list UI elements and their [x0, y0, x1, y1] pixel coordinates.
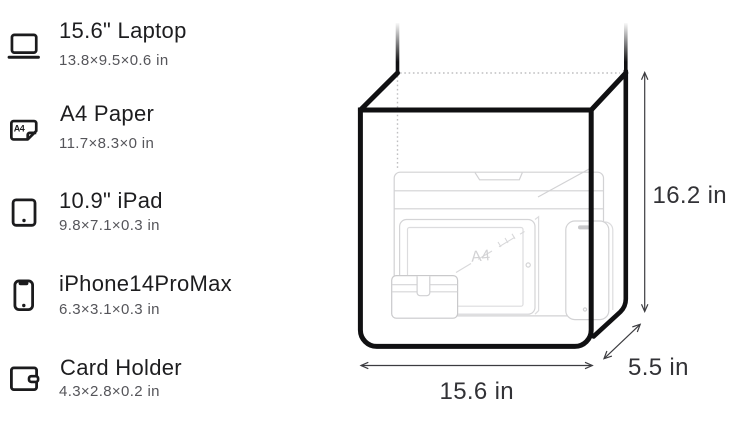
- svg-text:A4: A4: [470, 247, 491, 266]
